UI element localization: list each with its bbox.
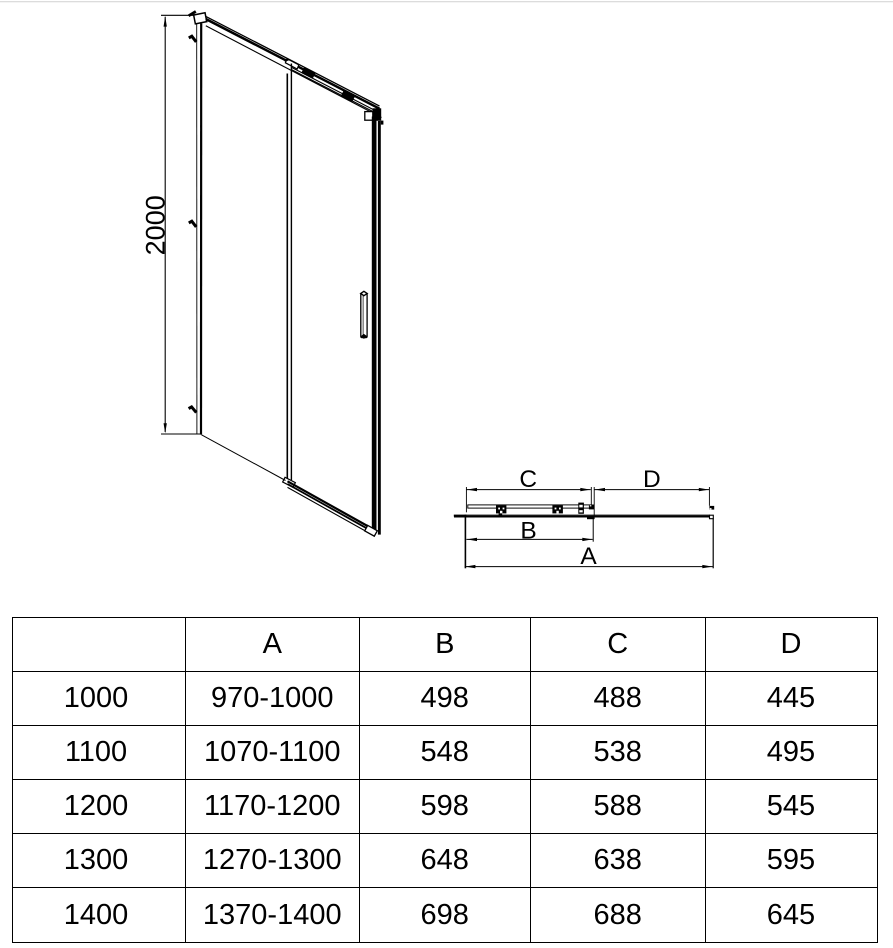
svg-text:D: D [643, 466, 661, 493]
svg-text:C: C [519, 466, 537, 493]
svg-text:A: A [580, 543, 597, 570]
svg-text:2000: 2000 [140, 195, 170, 255]
svg-text:B: B [520, 518, 536, 545]
